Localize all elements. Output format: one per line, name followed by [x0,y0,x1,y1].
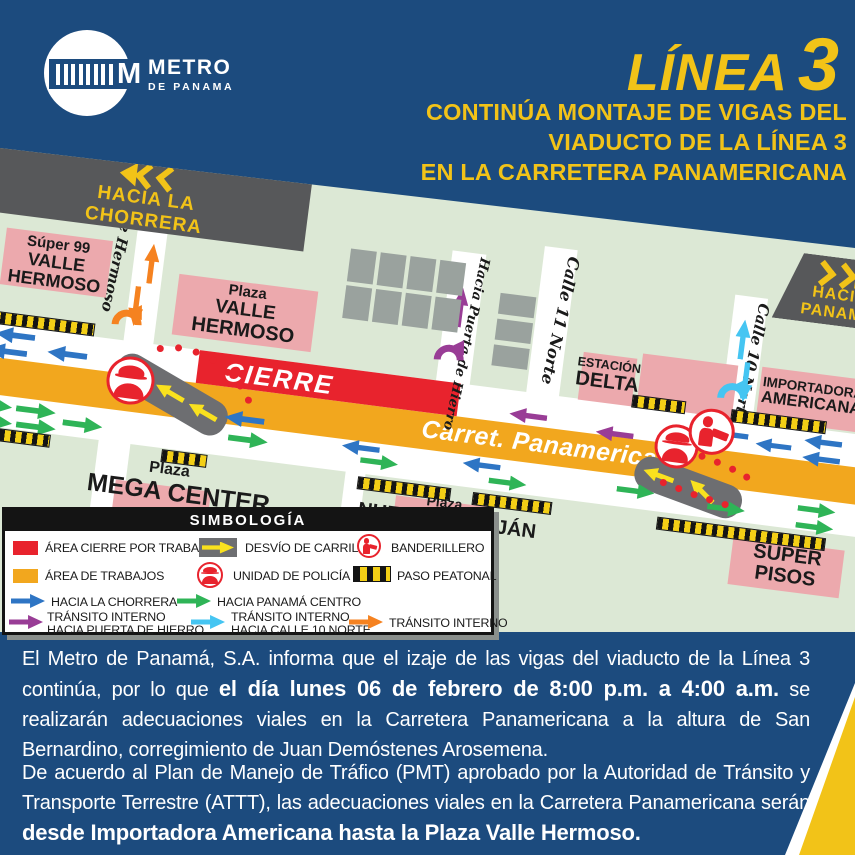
arrow-green-icon [177,594,211,608]
legend-label: PASO PEATONAL [397,569,496,583]
legend-label: UNIDAD DE POLICÍA [233,569,350,583]
legend-label: TRÁNSITO INTERNO [389,616,507,630]
announcement-paragraph-2: De acuerdo al Plan de Manejo de Tráfico … [22,758,810,849]
building-block [491,344,529,369]
building-block [347,248,377,284]
flagman-icon [357,534,381,558]
legend-label: TRÁNSITO INTERNO [231,610,349,624]
arrow-blue-icon [11,594,45,608]
legend-crosswalk-swatch [353,566,391,582]
legend-orange-swatch [13,569,38,583]
detour-arrow-icon [202,542,234,554]
legend-label: HACIA LA CHORRERA [51,595,177,609]
legend-label: HACIA CALLE 10 NORTE [231,623,371,637]
legend: SIMBOLOGÍA ÁREA CIERRE POR TRABAJOS DESV… [2,507,494,635]
legend-label: ÁREA DE TRABAJOS [45,569,164,583]
brand-bottom: DE PANAMA [148,81,234,93]
page-title: CONTINÚA MONTAJE DE VIGAS DEL VIADUCTO D… [421,97,847,187]
line-word: LÍNEA [627,43,788,103]
logo-bars-icon: M [49,59,156,89]
brand-top: METRO [148,56,234,80]
building-block [372,289,402,325]
building-block [406,256,436,292]
detour-arrow-icon [185,398,220,426]
building-block [431,297,461,333]
building-block [342,285,372,321]
police-unit-icon [197,562,223,588]
building-block [436,260,466,296]
metro-panama-logo: M [44,30,130,116]
label-plaza-valle-hermoso: Plaza VALLE HERMOSO [172,276,318,350]
sign-hacia-panama: HACIA PANAMÁ [772,250,855,334]
legend-red-swatch [13,541,38,555]
legend-label: HACIA PANAMÁ CENTRO [217,595,361,609]
line-title: LÍNEA 3 [627,22,839,107]
brand-name: METRO DE PANAMA [148,56,234,93]
legend-label: HACIA PUERTA DE HIERRO [47,623,204,637]
legend-label: BANDERILLERO [391,541,484,555]
announcement-paragraph-1: El Metro de Panamá, S.A. informa que el … [22,644,810,765]
detour-arrow-icon [153,379,188,407]
curve-arrow-purple-icon [432,343,466,377]
legend-title: SIMBOLOGÍA [5,510,491,531]
legend-desvio-swatch [199,538,237,557]
announcement-section: El Metro de Panamá, S.A. informa que el … [0,632,855,855]
building-block [498,293,536,318]
legend-label: DESVÍO DE CARRIL [245,541,358,555]
detour-arrow-icon [685,475,717,508]
legend-label: TRÁNSITO INTERNO [47,610,165,624]
arrow-purple-icon [9,615,43,629]
building-block [495,319,533,344]
line-number: 3 [798,22,839,107]
building-block [402,293,432,329]
legend-label: ÁREA CIERRE POR TRABAJOS [45,541,222,555]
building-block [377,252,407,288]
flyer: M METRO DE PANAMA LÍNEA 3 CONTINÚA MONTA… [0,0,855,855]
